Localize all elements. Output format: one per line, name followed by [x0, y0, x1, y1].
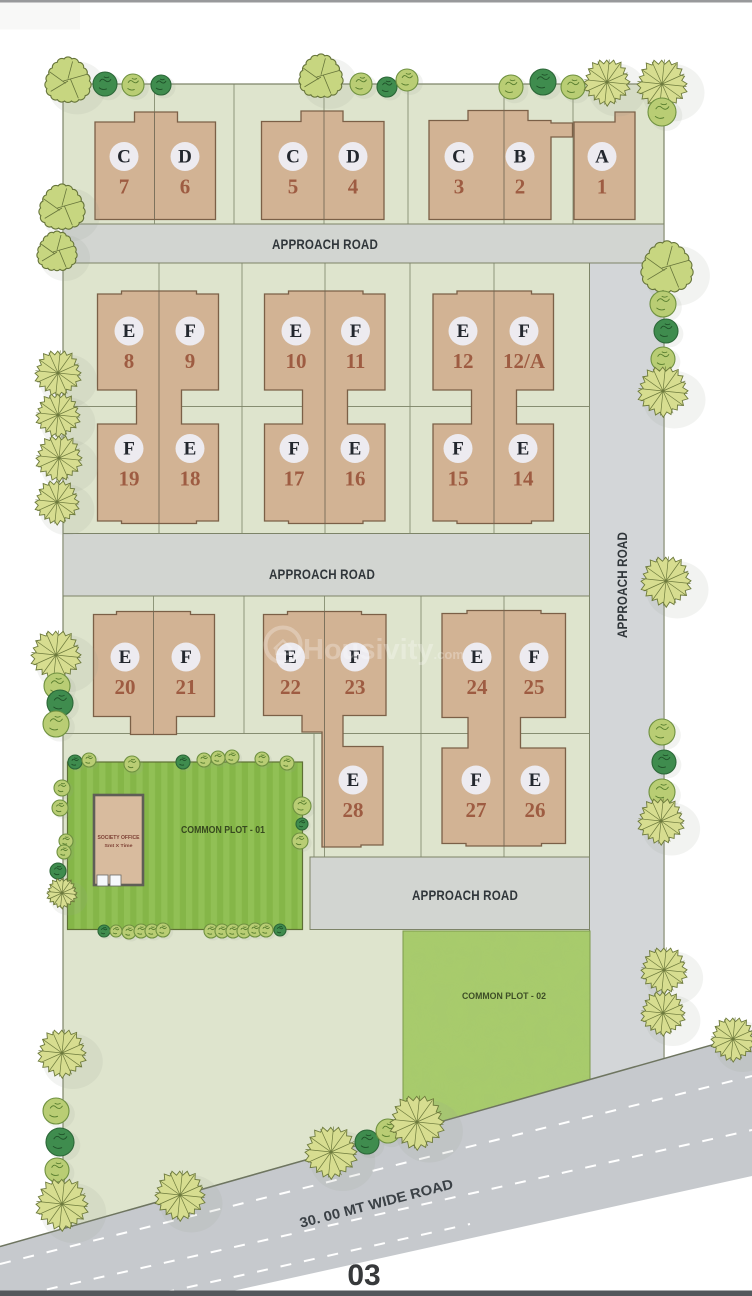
svg-text:03: 03	[347, 1259, 380, 1292]
svg-text:F: F	[184, 321, 196, 342]
svg-text:F: F	[350, 321, 362, 342]
svg-text:25: 25	[524, 675, 545, 699]
svg-text:11: 11	[346, 349, 366, 373]
svg-text:F: F	[518, 321, 530, 342]
svg-text:COMMON PLOT - 02: COMMON PLOT - 02	[462, 991, 546, 1002]
svg-text:APPROACH ROAD: APPROACH ROAD	[412, 887, 518, 903]
svg-text:E: E	[471, 647, 484, 668]
svg-text:E: E	[123, 321, 136, 342]
svg-text:8: 8	[124, 349, 135, 373]
svg-text:15: 15	[448, 467, 469, 491]
svg-text:B: B	[514, 147, 527, 168]
svg-text:6: 6	[180, 175, 191, 199]
svg-text:14: 14	[513, 467, 535, 491]
svg-text:APPROACH ROAD: APPROACH ROAD	[614, 532, 630, 638]
svg-text:18: 18	[180, 467, 201, 491]
svg-text:1: 1	[597, 175, 608, 199]
svg-text:E: E	[457, 321, 470, 342]
svg-text:Smt X Time: Smt X Time	[105, 843, 134, 848]
svg-text:28: 28	[343, 798, 364, 822]
svg-text:10: 10	[286, 349, 307, 373]
svg-text:F: F	[123, 439, 135, 460]
svg-text:E: E	[529, 770, 542, 791]
svg-text:21: 21	[176, 675, 197, 699]
svg-text:26: 26	[525, 798, 546, 822]
svg-text:APPROACH ROAD: APPROACH ROAD	[272, 236, 378, 252]
svg-text:22: 22	[280, 675, 301, 699]
svg-text:4: 4	[348, 175, 359, 199]
svg-text:D: D	[178, 147, 192, 168]
svg-text:SOCIETY OFFICE: SOCIETY OFFICE	[98, 835, 140, 841]
svg-text:17: 17	[284, 467, 305, 491]
svg-text:F: F	[528, 647, 540, 668]
svg-text:E: E	[347, 770, 360, 791]
svg-text:C: C	[452, 147, 466, 168]
svg-text:3: 3	[454, 175, 465, 199]
svg-text:E: E	[290, 321, 303, 342]
svg-text:D: D	[346, 147, 360, 168]
svg-text:A: A	[595, 147, 609, 168]
svg-text:12/A: 12/A	[503, 349, 546, 373]
svg-text:16: 16	[345, 467, 366, 491]
svg-text:24: 24	[467, 675, 489, 699]
svg-text:2: 2	[515, 175, 526, 199]
svg-text:E: E	[517, 439, 530, 460]
svg-text:F: F	[470, 770, 482, 791]
svg-text:C: C	[117, 147, 131, 168]
svg-text:F: F	[452, 439, 464, 460]
svg-text:9: 9	[185, 349, 196, 373]
svg-text:7: 7	[119, 175, 130, 199]
svg-text:E: E	[119, 647, 132, 668]
svg-text:20: 20	[115, 675, 136, 699]
svg-text:F: F	[288, 439, 300, 460]
svg-text:5: 5	[288, 175, 299, 199]
svg-text:19: 19	[119, 467, 140, 491]
svg-text:C: C	[286, 147, 300, 168]
svg-text:E: E	[184, 439, 197, 460]
svg-text:F: F	[180, 647, 192, 668]
svg-text:23: 23	[345, 675, 366, 699]
svg-text:12: 12	[453, 349, 474, 373]
svg-text:APPROACH ROAD: APPROACH ROAD	[269, 566, 375, 582]
svg-text:E: E	[349, 439, 362, 460]
svg-text:27: 27	[466, 798, 487, 822]
svg-text:COMMON PLOT - 01: COMMON PLOT - 01	[181, 825, 265, 836]
